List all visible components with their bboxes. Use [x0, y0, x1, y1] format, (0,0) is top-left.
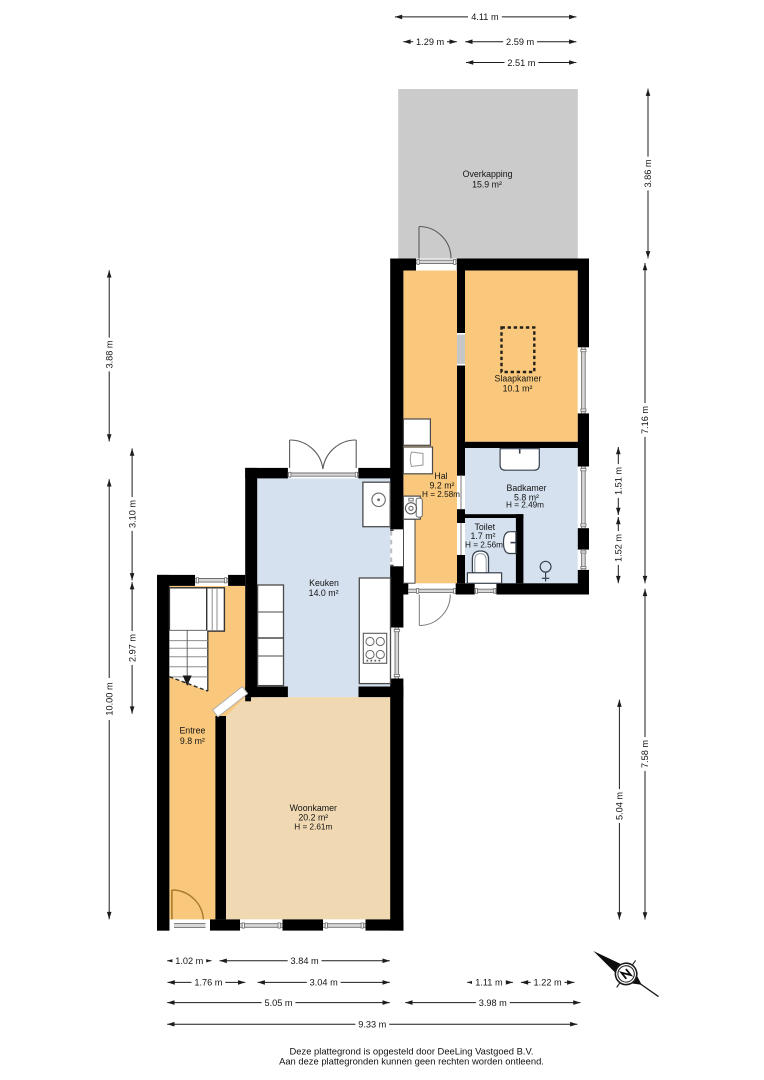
svg-text:Aan deze plattegronden kunnen: Aan deze plattegronden kunnen geen recht…: [279, 1056, 544, 1067]
svg-text:Overkapping: Overkapping: [463, 169, 513, 179]
svg-text:14.0 m²: 14.0 m²: [309, 588, 339, 598]
svg-text:Entree: Entree: [179, 726, 205, 736]
svg-text:7.58 m: 7.58 m: [640, 740, 650, 768]
svg-text:H = 2.49m: H = 2.49m: [506, 501, 544, 510]
svg-text:H = 2.61m: H = 2.61m: [294, 823, 332, 832]
svg-text:9.33 m: 9.33 m: [358, 1020, 386, 1030]
svg-text:3.88 m: 3.88 m: [104, 340, 114, 368]
svg-text:Woonkamer: Woonkamer: [290, 803, 337, 813]
svg-text:H = 2.58m: H = 2.58m: [422, 490, 460, 499]
svg-text:10.00 m: 10.00 m: [104, 682, 114, 716]
svg-text:3.98 m: 3.98 m: [479, 998, 507, 1008]
svg-text:1.29 m: 1.29 m: [416, 37, 444, 47]
svg-text:Keuken: Keuken: [309, 578, 339, 588]
svg-text:1.02 m: 1.02 m: [175, 956, 203, 966]
svg-text:3.86 m: 3.86 m: [643, 159, 653, 187]
svg-text:5.04 m: 5.04 m: [615, 792, 625, 820]
svg-text:1.52 m: 1.52 m: [614, 534, 624, 562]
svg-text:9.2 m²: 9.2 m²: [430, 480, 455, 490]
svg-text:Slaapkamer: Slaapkamer: [495, 374, 542, 384]
svg-text:1.11 m: 1.11 m: [475, 978, 503, 988]
svg-text:1.76 m: 1.76 m: [194, 978, 222, 988]
svg-text:2.51 m: 2.51 m: [507, 58, 535, 68]
svg-text:9.8 m²: 9.8 m²: [180, 736, 205, 746]
svg-text:20.2 m²: 20.2 m²: [298, 813, 328, 823]
svg-text:10.1 m²: 10.1 m²: [503, 383, 533, 393]
svg-text:3.10 m: 3.10 m: [127, 500, 137, 528]
svg-text:1.22 m: 1.22 m: [534, 978, 562, 988]
svg-text:15.9 m²: 15.9 m²: [472, 180, 502, 190]
svg-text:5.05 m: 5.05 m: [264, 998, 292, 1008]
svg-text:3.84 m: 3.84 m: [291, 956, 319, 966]
svg-text:7.16 m: 7.16 m: [640, 406, 650, 434]
svg-text:4.11 m: 4.11 m: [471, 12, 499, 22]
svg-text:H = 2.56m: H = 2.56m: [465, 541, 503, 550]
svg-text:2.59 m: 2.59 m: [506, 37, 534, 47]
svg-text:3.04 m: 3.04 m: [310, 978, 338, 988]
svg-text:1.51 m: 1.51 m: [614, 467, 624, 495]
svg-text:2.97 m: 2.97 m: [127, 634, 137, 662]
